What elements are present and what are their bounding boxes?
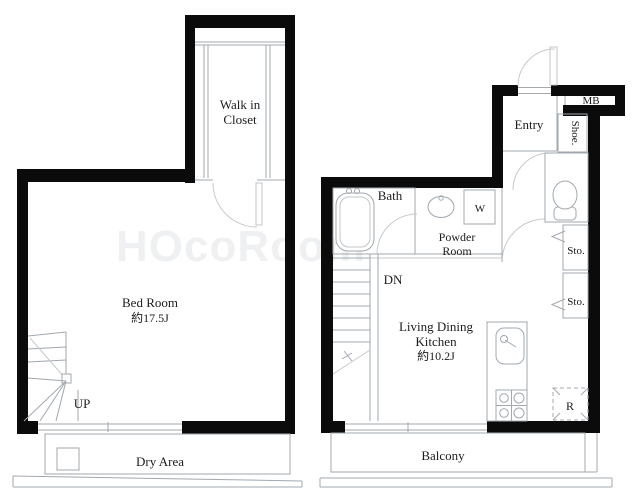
bath-door-arc bbox=[377, 214, 417, 254]
toilet-icon bbox=[553, 181, 577, 209]
room-label-bedroom: Bed Room bbox=[122, 295, 178, 310]
floorplan-drawing: Walk in Closet Bed Room 約17.5J UP Dry Ar… bbox=[0, 0, 640, 504]
sink-icon bbox=[428, 197, 454, 218]
shoe-cabinet-label: Shoe. bbox=[569, 121, 581, 146]
meter-box-label: MB bbox=[582, 95, 599, 107]
dry-area-label: Dry Area bbox=[136, 454, 184, 469]
washer-label: W bbox=[475, 203, 486, 215]
room-size-bedroom: 約17.5J bbox=[131, 310, 169, 325]
upper-floor: Walk in Closet Bed Room 約17.5J UP Dry Ar… bbox=[13, 15, 302, 487]
bath-room bbox=[333, 188, 502, 258]
room-label-bath: Bath bbox=[378, 188, 403, 203]
kitchen-counter bbox=[487, 322, 527, 421]
room-label-entry: Entry bbox=[515, 117, 544, 132]
storage1-label: Sto. bbox=[567, 245, 585, 257]
floorplan-page: HOcoRoom bbox=[0, 0, 640, 504]
stove-icon bbox=[496, 390, 527, 421]
stairs-up-label: UP bbox=[74, 396, 91, 411]
refrigerator-label: R bbox=[566, 399, 574, 413]
hallway-door-arcs bbox=[502, 153, 550, 262]
room-label-powder-line1: Powder bbox=[439, 230, 476, 244]
balcony-label: Balcony bbox=[421, 448, 465, 463]
room-label-ldk-line2: Kitchen bbox=[415, 334, 457, 349]
bedroom-window bbox=[38, 422, 182, 432]
room-label-walk-in-closet-line2: Closet bbox=[223, 112, 257, 127]
storage2-label: Sto. bbox=[567, 296, 585, 308]
room-label-powder-line2: Room bbox=[442, 244, 472, 258]
room-label-walk-in-closet-line1: Walk in bbox=[220, 97, 261, 112]
stairs-up bbox=[24, 332, 78, 421]
closet-door-arc bbox=[213, 183, 262, 227]
stairs-down bbox=[333, 254, 378, 421]
toilet-room bbox=[545, 153, 588, 222]
balcony bbox=[320, 433, 612, 487]
room-label-ldk-line1: Living Dining bbox=[399, 319, 474, 334]
kitchen-sink-icon bbox=[496, 328, 524, 364]
lower-floor: MB Entry Shoe. bbox=[320, 47, 625, 487]
ldk-window bbox=[345, 422, 487, 432]
room-size-ldk: 約10.2J bbox=[417, 348, 455, 363]
stairs-down-label: DN bbox=[384, 272, 403, 287]
